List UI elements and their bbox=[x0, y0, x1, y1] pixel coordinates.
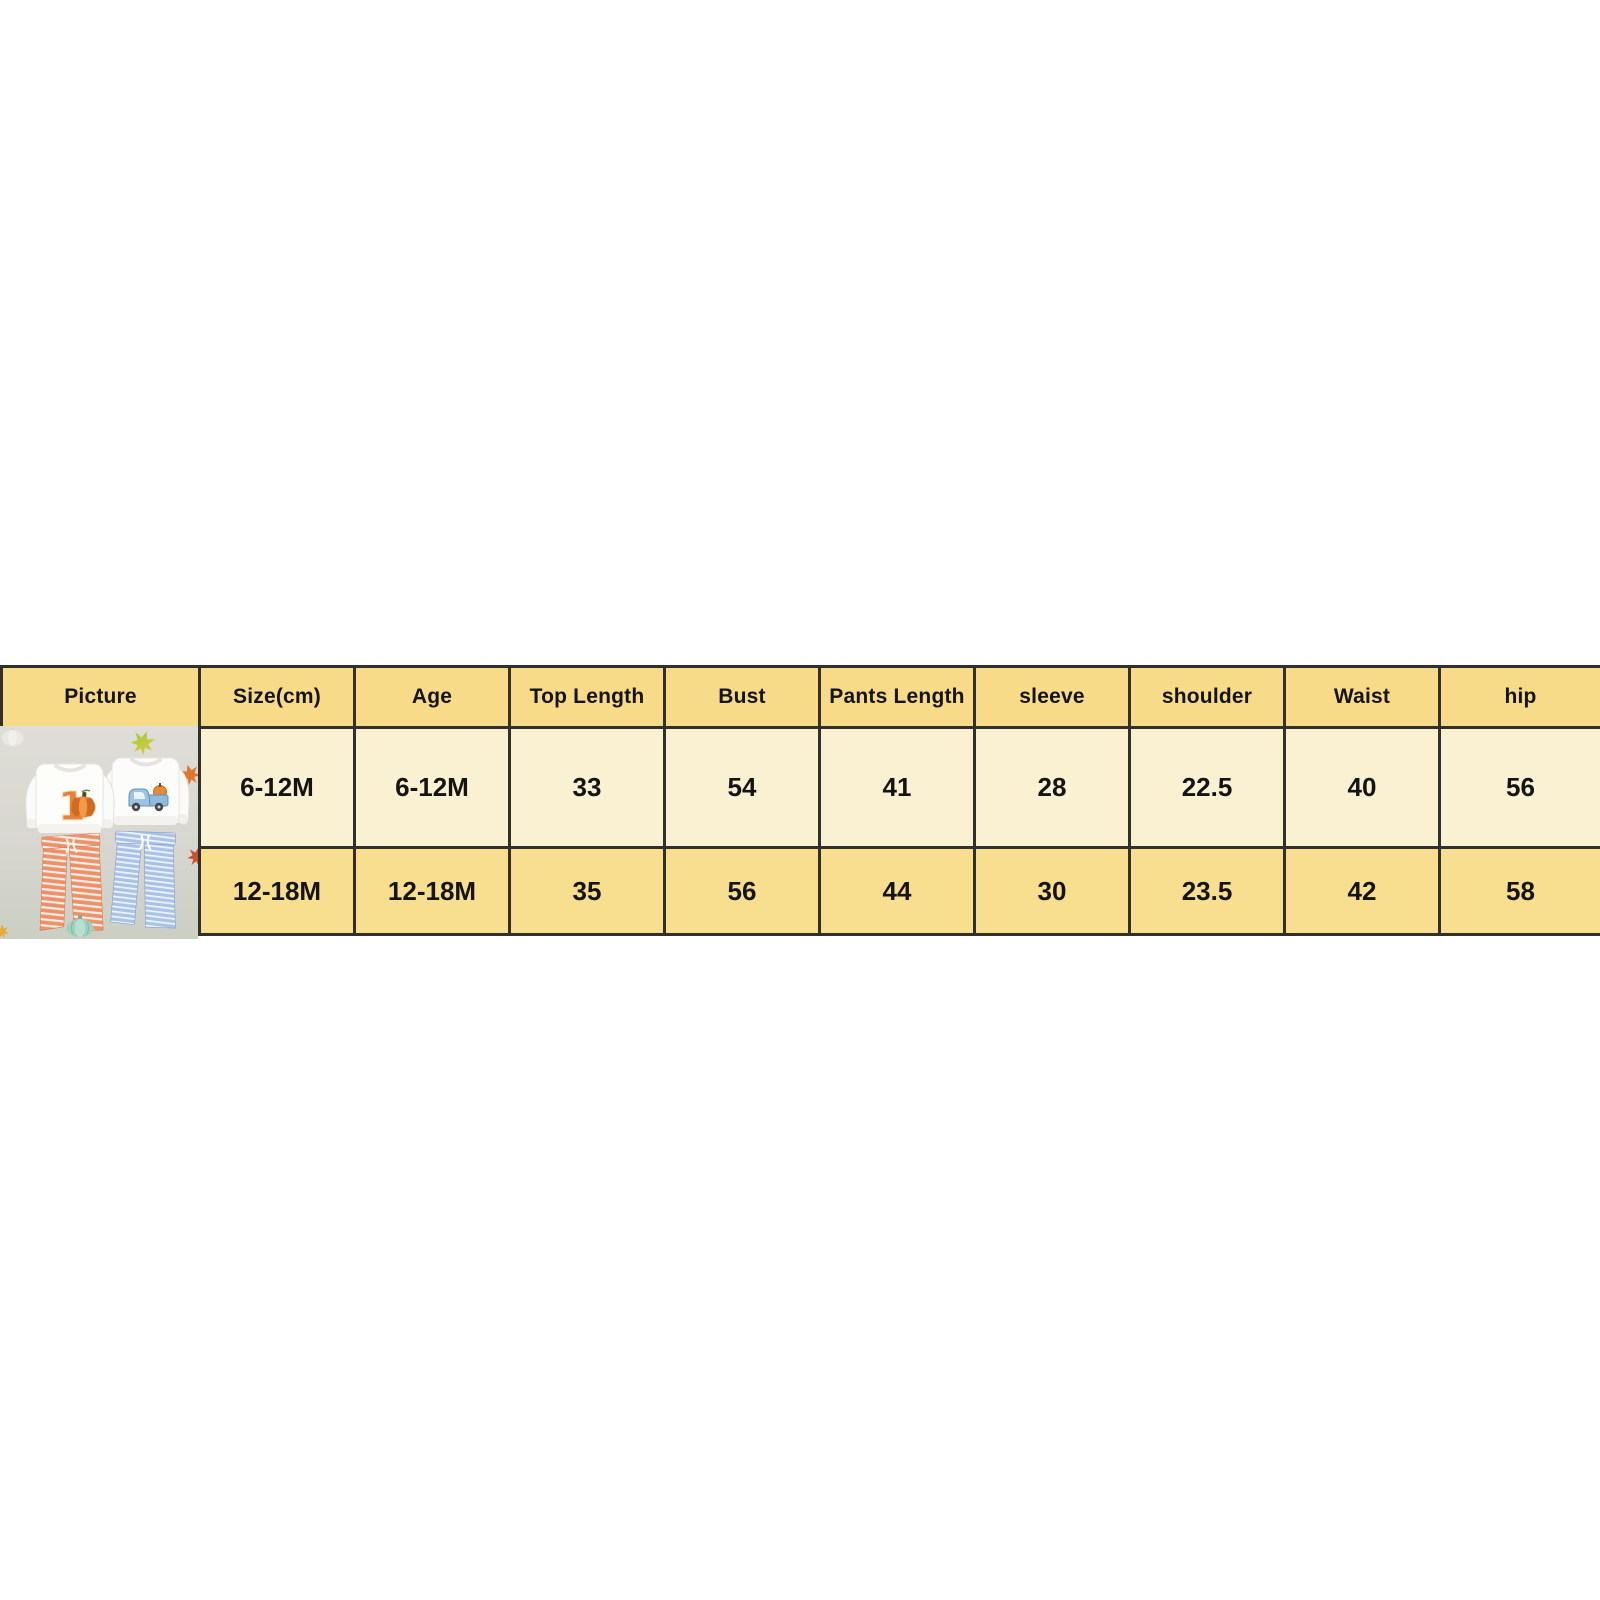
header-cell-size: Size(cm) bbox=[200, 667, 355, 728]
page-root: Picture Size(cm) Age Top Length Bust Pan… bbox=[0, 0, 1600, 1600]
header-row: Picture Size(cm) Age Top Length Bust Pan… bbox=[2, 667, 1600, 728]
cell-top-length-2: 35 bbox=[510, 848, 665, 935]
cell-shoulder-1: 22.5 bbox=[1130, 728, 1285, 848]
cell-waist-1: 40 bbox=[1285, 728, 1440, 848]
cell-sleeve-2: 30 bbox=[975, 848, 1130, 935]
header-cell-waist: Waist bbox=[1285, 667, 1440, 728]
cell-top-length-1: 33 bbox=[510, 728, 665, 848]
cell-hip-2: 58 bbox=[1440, 848, 1600, 935]
header-cell-pants-length: Pants Length bbox=[820, 667, 975, 728]
size-chart-stage: Picture Size(cm) Age Top Length Bust Pan… bbox=[0, 665, 1600, 945]
table-row-12-18m: 12-18M 12-18M 35 56 44 30 23.5 42 58 bbox=[2, 848, 1600, 935]
pumpkin-sweatshirt: 1 bbox=[26, 764, 114, 833]
cell-size-1: 6-12M bbox=[200, 728, 355, 848]
cell-age-1: 6-12M bbox=[355, 728, 510, 848]
cell-bust-2: 56 bbox=[665, 848, 820, 935]
cell-bust-1: 54 bbox=[665, 728, 820, 848]
cell-age-2: 12-18M bbox=[355, 848, 510, 935]
cell-pants-length-1: 41 bbox=[820, 728, 975, 848]
header-cell-picture: Picture bbox=[2, 667, 200, 728]
table-row-6-12m: 6-12M 6-12M 33 54 41 28 22.5 40 56 bbox=[2, 728, 1600, 848]
truck-sweatshirt bbox=[102, 758, 189, 825]
cell-waist-2b: 23.5 bbox=[1130, 848, 1285, 935]
header-cell-age: Age bbox=[355, 667, 510, 728]
cell-sleeve-1: 28 bbox=[975, 728, 1130, 848]
product-photo-illustration: 1 bbox=[0, 726, 198, 939]
cell-hip-1: 56 bbox=[1440, 728, 1600, 848]
cell-size-2: 12-18M bbox=[200, 848, 355, 935]
header-cell-sleeve: sleeve bbox=[975, 667, 1130, 728]
header-cell-top-length: Top Length bbox=[510, 667, 665, 728]
size-chart-table: Picture Size(cm) Age Top Length Bust Pan… bbox=[0, 665, 1600, 936]
header-cell-shoulder: shoulder bbox=[1130, 667, 1285, 728]
header-cell-bust: Bust bbox=[665, 667, 820, 728]
cell-pants-length-2: 44 bbox=[820, 848, 975, 935]
header-cell-hip: hip bbox=[1440, 667, 1600, 728]
product-photo: 1 bbox=[0, 726, 198, 939]
cell-waist-2: 42 bbox=[1285, 848, 1440, 935]
